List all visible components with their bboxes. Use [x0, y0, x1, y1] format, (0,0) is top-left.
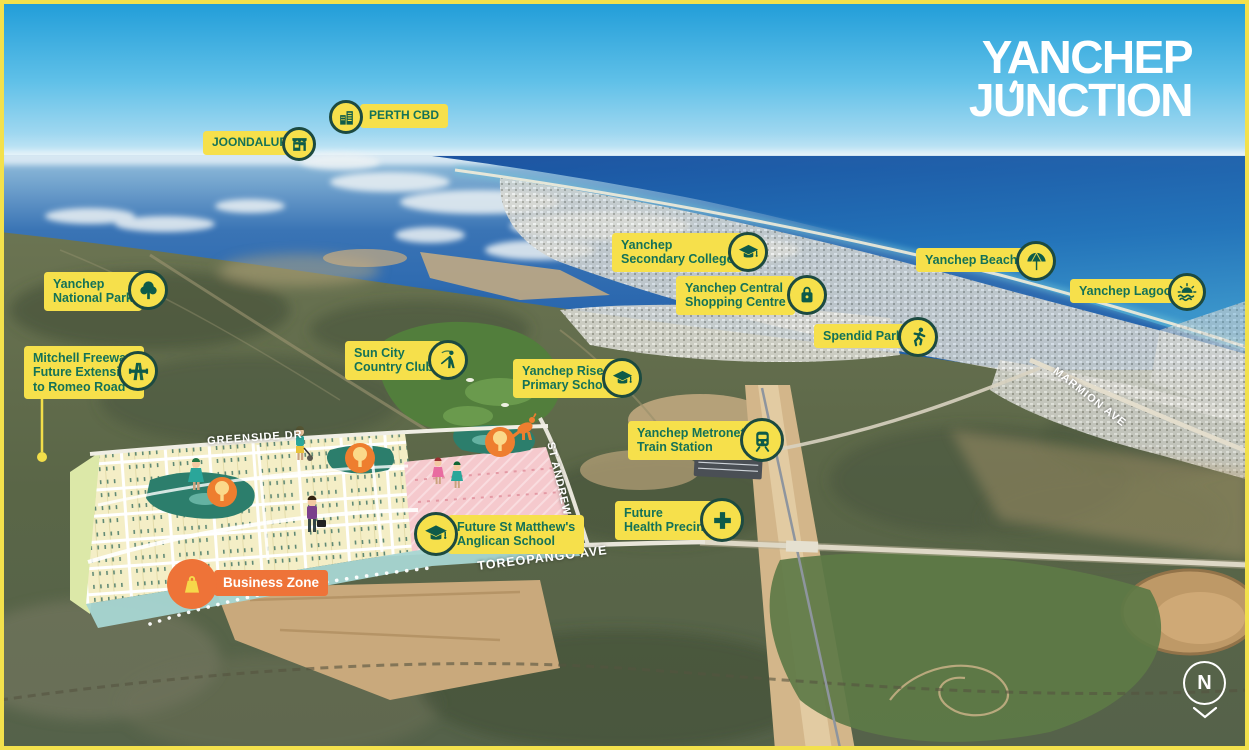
poi-label: PERTH CBD [360, 104, 448, 128]
compass-chevron-icon [1192, 706, 1218, 720]
train-icon [750, 428, 775, 453]
runner-icon [907, 326, 930, 349]
logo-line1: YANCHEP [969, 36, 1192, 79]
poi-label: Yanchep Central Shopping Centre [676, 276, 795, 315]
poi-label: Yanchep Secondary College [612, 233, 743, 272]
poi-label: Future St Matthew's Anglican School [448, 515, 584, 554]
medical-cross-icon [710, 508, 735, 533]
poi-label: Business Zone [214, 570, 328, 596]
compass-north-label: N [1197, 672, 1211, 695]
graduation-cap-icon [611, 367, 634, 390]
poi-label: Yanchep Beach [916, 248, 1026, 272]
north-compass: N [1183, 661, 1226, 705]
logo: YANCHEP JUNCTION [969, 36, 1192, 122]
poi-label: Yanchep Metronet Train Station [628, 421, 754, 460]
shopping-bag-icon [179, 571, 205, 597]
buildings-icon [337, 108, 356, 127]
graduation-cap-icon [737, 241, 760, 264]
tree-icon [137, 279, 160, 302]
graduation-cap-icon [423, 521, 449, 547]
shopping-bag-icon [796, 284, 818, 306]
sun-waves-icon [1176, 281, 1198, 303]
freeway-icon [127, 360, 150, 383]
logo-line2: JUNCTION [969, 79, 1192, 122]
golfer-icon [437, 349, 460, 372]
beach-umbrella-icon [1025, 250, 1048, 273]
storefront-icon [290, 135, 309, 154]
